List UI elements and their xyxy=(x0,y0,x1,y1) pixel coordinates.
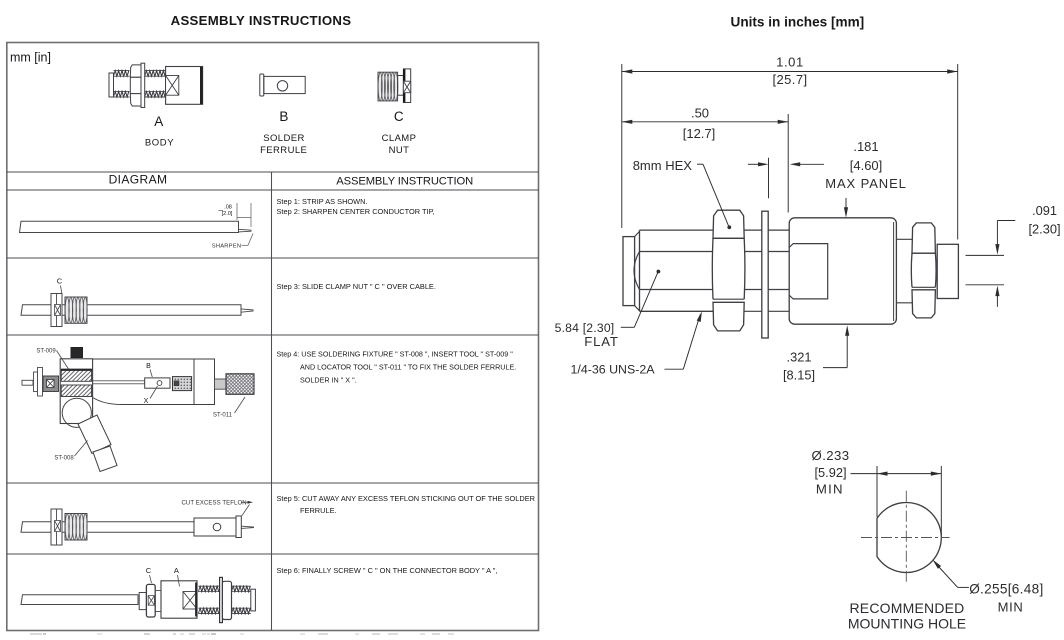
svg-text:5.84 [2.30]: 5.84 [2.30] xyxy=(555,321,615,335)
svg-text:[5.92]: [5.92] xyxy=(814,465,846,480)
svg-text:1.01: 1.01 xyxy=(776,55,804,70)
svg-text:[2.0]: [2.0] xyxy=(222,211,233,217)
svg-text:Step 3: SLIDE CLAMP NUT " C ": Step 3: SLIDE CLAMP NUT " C " OVER CABLE… xyxy=(277,282,436,291)
svg-text:Units in inches [mm]: Units in inches [mm] xyxy=(731,15,865,30)
svg-text:FERRULE: FERRULE xyxy=(260,145,307,156)
svg-text:SOLDER: SOLDER xyxy=(263,133,304,144)
svg-text:Step 6: FINALLY SCREW " C " ON: Step 6: FINALLY SCREW " C " ON THE CONNE… xyxy=(277,566,498,575)
svg-text:Step 4: USE SOLDERING FIXTURE: Step 4: USE SOLDERING FIXTURE " ST-008 "… xyxy=(277,350,514,359)
svg-text:ST-009: ST-009 xyxy=(36,349,56,355)
svg-text:Ø.255[6.48]: Ø.255[6.48] xyxy=(969,582,1043,597)
svg-text:C: C xyxy=(146,566,152,575)
svg-text:ST-011: ST-011 xyxy=(213,413,233,419)
svg-text:[4.60]: [4.60] xyxy=(850,158,883,173)
svg-text:B: B xyxy=(146,363,151,370)
svg-text:FERRULE.: FERRULE. xyxy=(300,506,337,515)
svg-text:[25.7]: [25.7] xyxy=(773,72,808,87)
svg-text:ASSEMBLY INSTRUCTIONS: ASSEMBLY INSTRUCTIONS xyxy=(171,13,352,28)
svg-text:A: A xyxy=(174,566,179,575)
svg-text:AND LOCATOR TOOL " ST-011 " TO: AND LOCATOR TOOL " ST-011 " TO FIX THE S… xyxy=(300,363,516,372)
svg-text:X: X xyxy=(144,398,149,405)
svg-text:Step 1: STRIP AS SHOWN.: Step 1: STRIP AS SHOWN. xyxy=(277,197,368,206)
svg-text:CLAMP: CLAMP xyxy=(382,133,417,144)
svg-text:C: C xyxy=(57,277,63,286)
svg-text:MIN: MIN xyxy=(816,482,844,497)
svg-text:CUT EXCESS TEFLON: CUT EXCESS TEFLON xyxy=(182,501,247,507)
svg-text:.50: .50 xyxy=(691,105,709,120)
svg-text:C: C xyxy=(394,109,404,124)
svg-text:MIN: MIN xyxy=(998,600,1024,615)
svg-text:NUT: NUT xyxy=(389,145,410,156)
svg-text:MOUNTING HOLE: MOUNTING HOLE xyxy=(848,615,966,631)
svg-text:RECOMMENDED: RECOMMENDED xyxy=(850,600,965,616)
svg-text:ASSEMBLY INSTRUCTION: ASSEMBLY INSTRUCTION xyxy=(336,175,473,187)
svg-text:1/4-36 UNS-2A: 1/4-36 UNS-2A xyxy=(571,363,656,377)
svg-text:BODY: BODY xyxy=(145,138,174,149)
svg-text:A: A xyxy=(154,114,163,129)
svg-text:.08: .08 xyxy=(224,205,232,211)
svg-text:8mm HEX: 8mm HEX xyxy=(633,158,693,173)
svg-text:B: B xyxy=(279,109,288,124)
svg-text:SOLDER IN " X ".: SOLDER IN " X ". xyxy=(300,376,357,385)
svg-text:SHARPEN: SHARPEN xyxy=(212,244,241,250)
svg-text:[8.15]: [8.15] xyxy=(783,367,815,382)
svg-text:Ø.233: Ø.233 xyxy=(812,448,850,463)
svg-text:FLAT: FLAT xyxy=(584,334,618,349)
svg-text:[12.7]: [12.7] xyxy=(683,126,716,141)
svg-text:DIAGRAM: DIAGRAM xyxy=(109,173,168,187)
svg-text:Step 2: SHARPEN CENTER CONDUCT: Step 2: SHARPEN CENTER CONDUCTOR TIP, xyxy=(277,207,435,216)
svg-text:.091: .091 xyxy=(1032,203,1057,218)
svg-text:.321: .321 xyxy=(787,349,812,364)
svg-text:.181: .181 xyxy=(853,139,878,154)
svg-text:mm [in]: mm [in] xyxy=(10,51,51,65)
svg-text:Step 5: CUT AWAY ANY EXCESS TE: Step 5: CUT AWAY ANY EXCESS TEFLON STICK… xyxy=(277,494,535,503)
svg-text:ST-008: ST-008 xyxy=(54,456,74,462)
svg-text:MAX PANEL: MAX PANEL xyxy=(825,176,907,191)
svg-text:[2.30]: [2.30] xyxy=(1028,222,1060,237)
